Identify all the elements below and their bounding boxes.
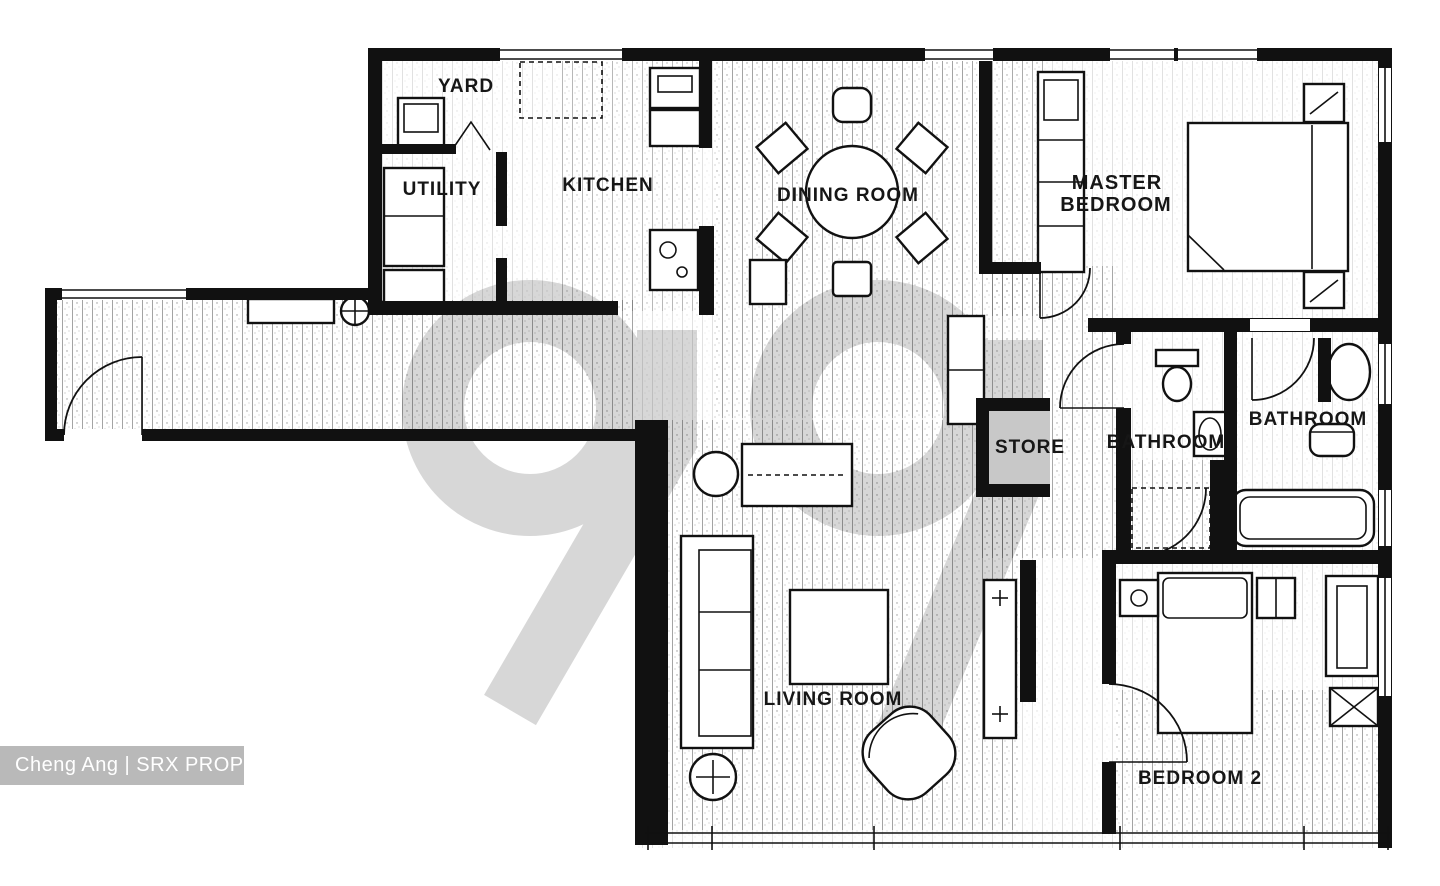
bedroom2-ac-unit: [1330, 688, 1378, 726]
label-living-room: LIVING ROOM: [764, 689, 903, 710]
ceiling-fan-icon: [341, 297, 369, 325]
label-store: STORE: [995, 437, 1065, 458]
window-master-east: [1379, 68, 1391, 142]
label-dining-room: DINING ROOM: [777, 185, 919, 206]
window-dining: [925, 48, 993, 61]
label-utility: UTILITY: [403, 179, 482, 200]
window-bath-east-2: [1379, 490, 1391, 546]
dining-cabinet: [750, 260, 786, 304]
label-bathroom-common: BATHROOM: [1107, 432, 1225, 453]
master-bed: [1188, 123, 1348, 271]
label-bathroom-master: BATHROOM: [1249, 409, 1367, 430]
living-sofa: [681, 536, 753, 748]
tv-console: [984, 580, 1016, 738]
bedroom2-bed: [1158, 573, 1252, 733]
master-nightstand-bottom: [1304, 272, 1344, 308]
bedroom2-desk: [1326, 576, 1378, 676]
window-bath-east-1: [1379, 344, 1391, 404]
window-bedroom2-east: [1379, 578, 1391, 696]
bathtub: [1232, 490, 1374, 546]
window-corridor: [62, 288, 186, 300]
column: [694, 452, 738, 496]
window-master-top-1: [1110, 48, 1174, 61]
coffee-table: [790, 590, 888, 684]
label-master-line1: MASTER: [1072, 172, 1162, 194]
floor-plan-page: YARD UTILITY KITCHEN DINING ROOM MASTER …: [0, 0, 1440, 886]
label-master-line2: BEDROOM: [1060, 194, 1171, 216]
master-nightstand-top: [1304, 84, 1344, 122]
agent-credit-badge: Cheng Ang | SRX PROPERTY: [0, 746, 244, 785]
bedroom2-table: [1257, 578, 1295, 618]
label-yard: YARD: [438, 76, 494, 97]
entry-sideboard: [742, 444, 852, 506]
bedroom2-nightstand: [1120, 580, 1158, 616]
corridor-cabinet: [248, 299, 334, 323]
yard-sink: [398, 98, 444, 148]
label-bedroom2: BEDROOM 2: [1138, 768, 1262, 789]
label-kitchen: KITCHEN: [562, 175, 653, 196]
window-kitchen: [500, 48, 622, 61]
side-table: [690, 754, 736, 800]
window-master-top-2: [1178, 48, 1257, 61]
